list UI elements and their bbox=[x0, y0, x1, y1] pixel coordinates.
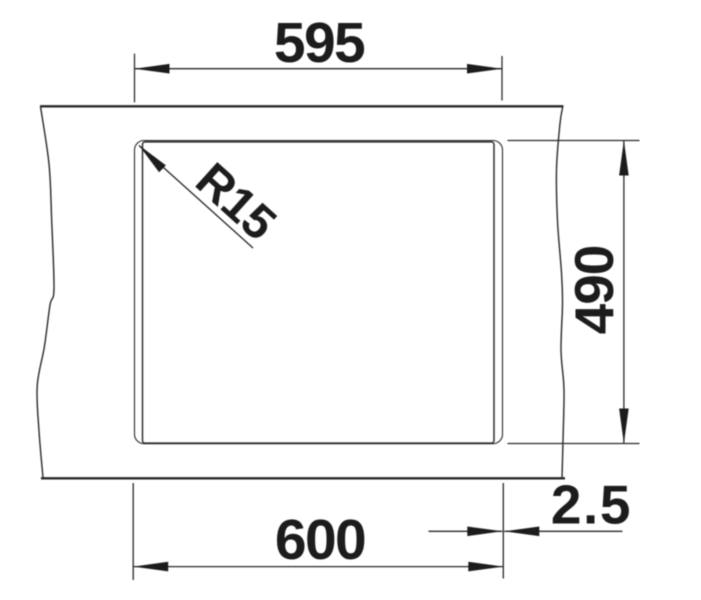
svg-text:2.5: 2.5 bbox=[551, 474, 632, 536]
svg-text:595: 595 bbox=[274, 11, 365, 75]
svg-text:490: 490 bbox=[563, 246, 625, 335]
svg-text:600: 600 bbox=[275, 508, 365, 572]
